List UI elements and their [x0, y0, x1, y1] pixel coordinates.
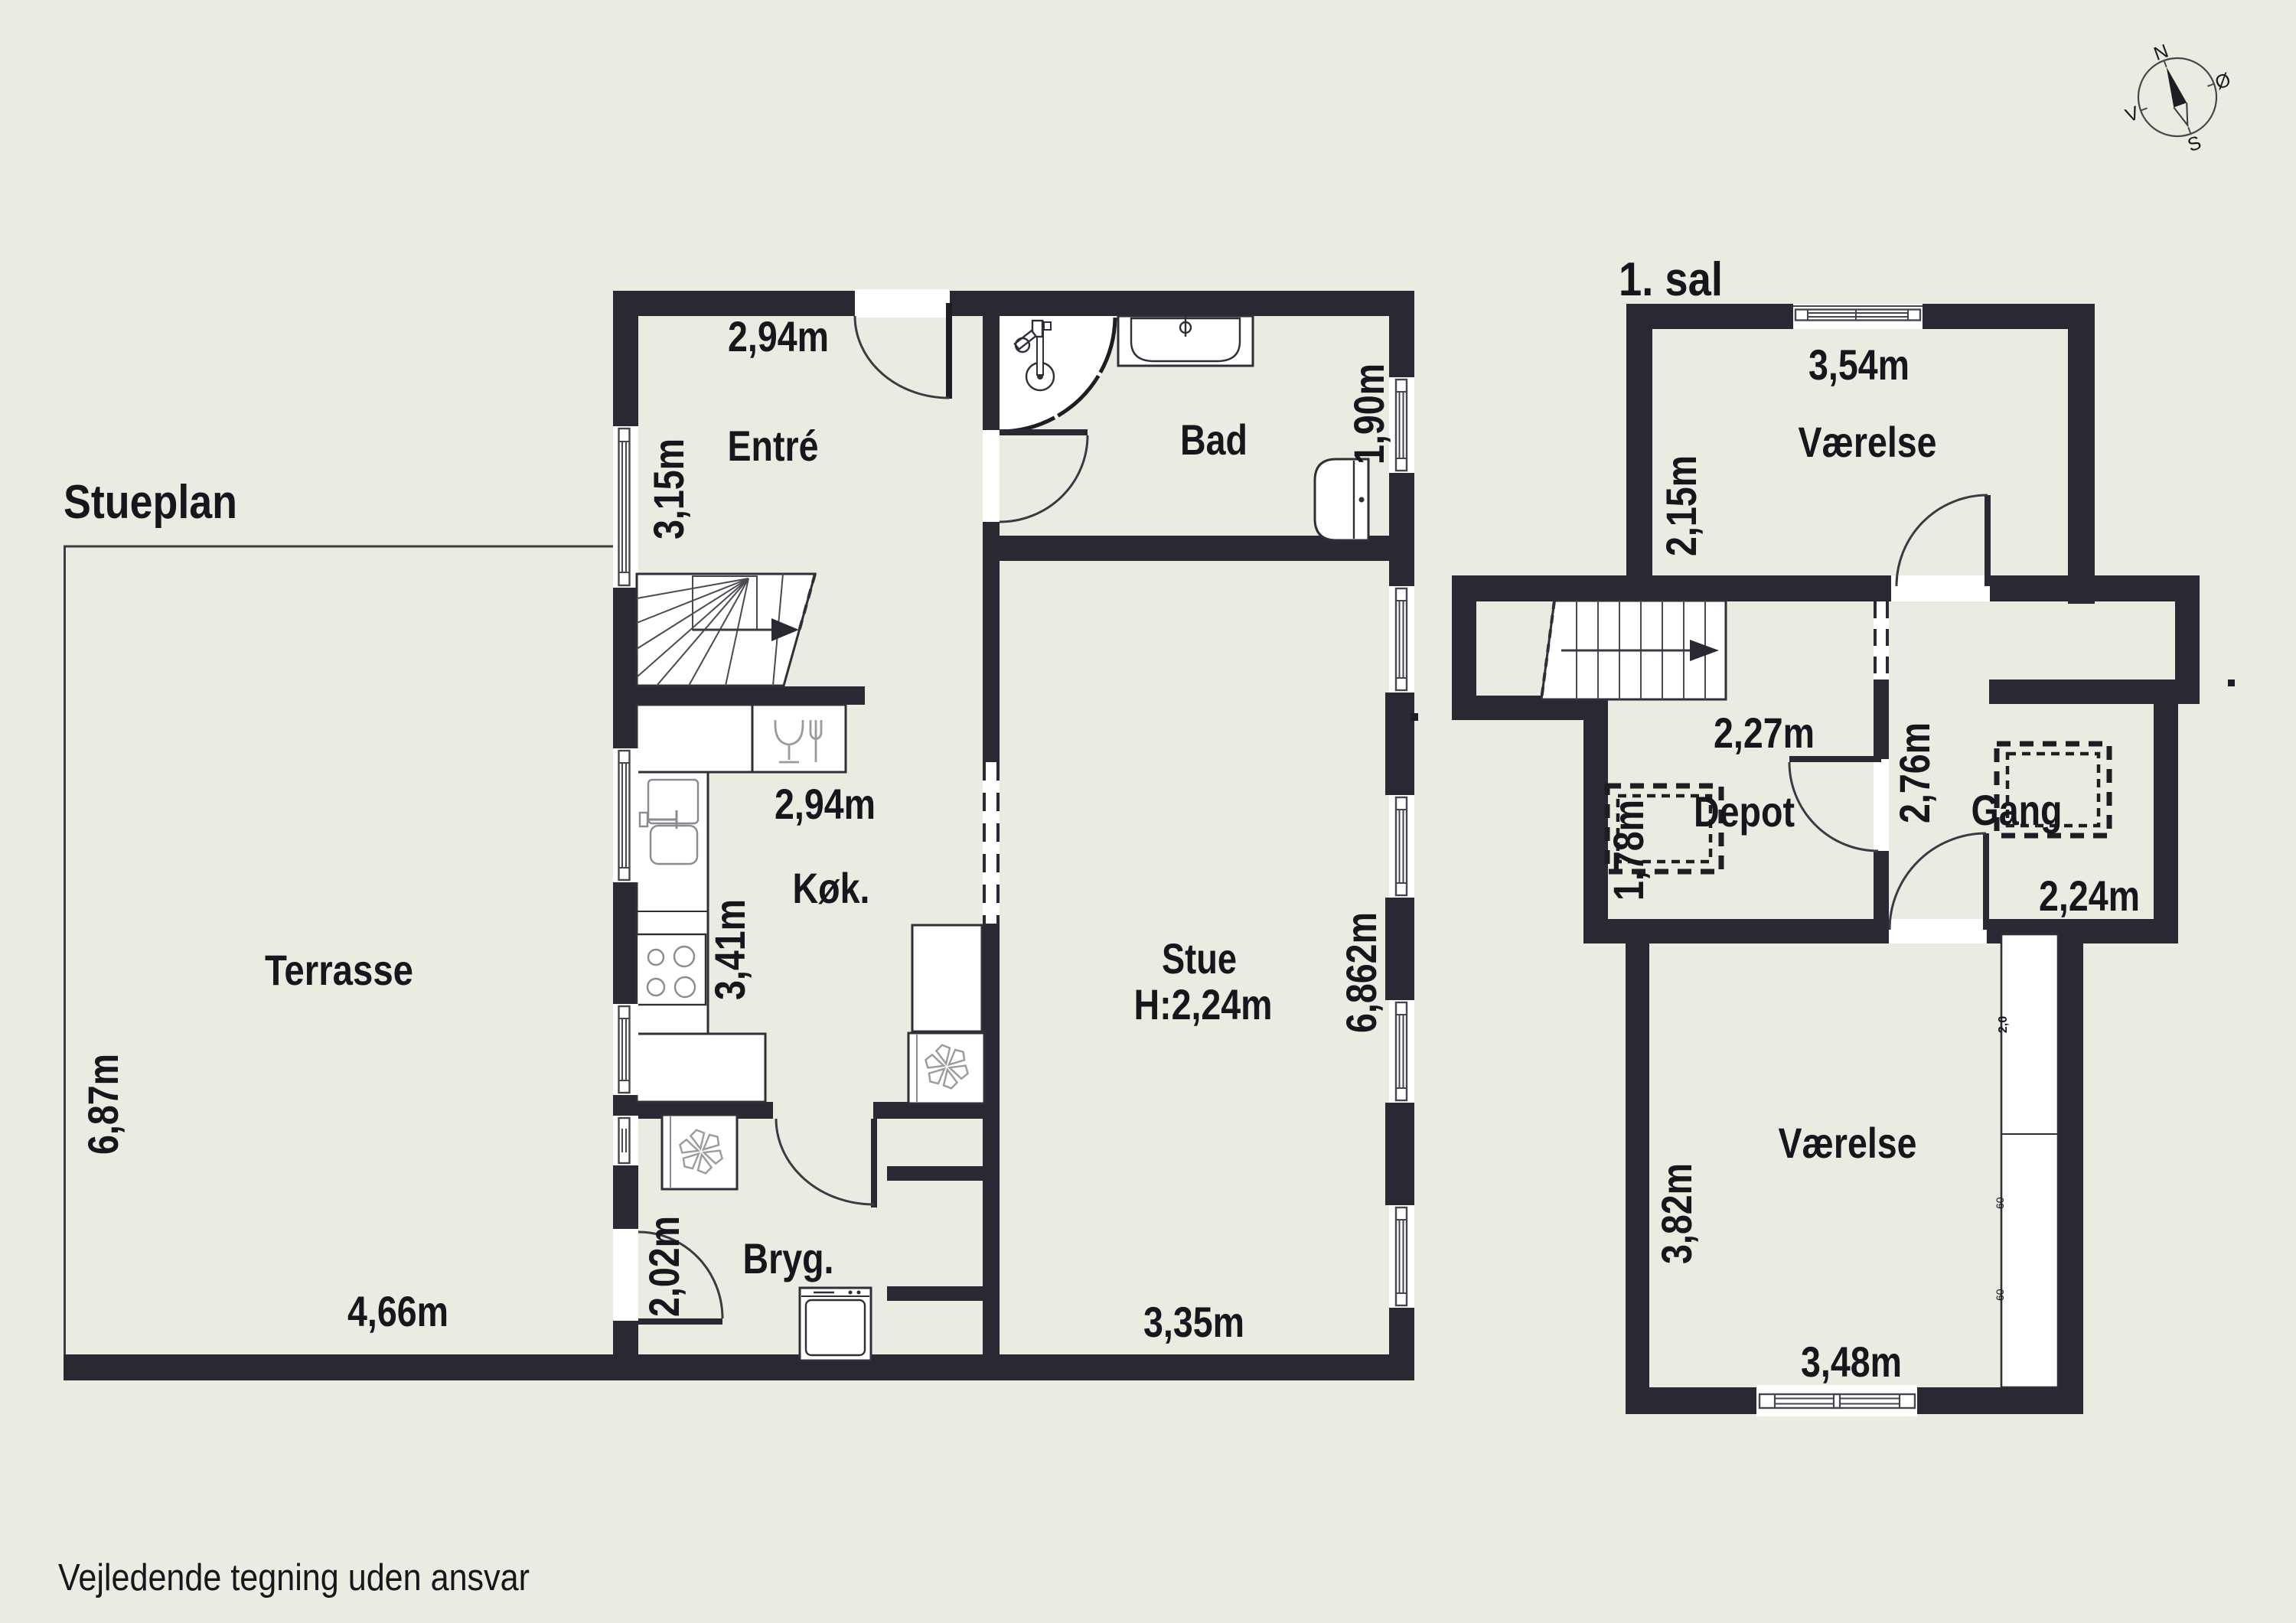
svg-text:Bryg.: Bryg.	[743, 1234, 834, 1282]
svg-text:Terrasse: Terrasse	[265, 946, 413, 994]
svg-text:60: 60	[1994, 1197, 2006, 1209]
svg-text:Værelse: Værelse	[1779, 1119, 1917, 1167]
svg-text:6,862m: 6,862m	[1337, 912, 1385, 1033]
svg-text:2,94m: 2,94m	[775, 780, 876, 828]
svg-text:2,0: 2,0	[1997, 1016, 2010, 1033]
svg-text:4,66m: 4,66m	[347, 1287, 448, 1335]
svg-text:3,54m: 3,54m	[1808, 341, 1910, 389]
svg-text:Bad: Bad	[1180, 416, 1247, 464]
svg-text:Køk.: Køk.	[793, 864, 870, 912]
svg-text:1. sal: 1. sal	[1619, 253, 1723, 306]
svg-text:Vejledende tegning uden ansvar: Vejledende tegning uden ansvar	[58, 1557, 530, 1599]
svg-text:2,94m: 2,94m	[728, 312, 829, 360]
svg-text:3,48m: 3,48m	[1801, 1338, 1902, 1386]
svg-text:2,15m: 2,15m	[1657, 455, 1705, 556]
svg-text:3,15m: 3,15m	[644, 438, 693, 539]
svg-text:3,82m: 3,82m	[1652, 1163, 1701, 1264]
svg-text:Stueplan: Stueplan	[64, 476, 237, 529]
svg-text:60: 60	[1994, 1289, 2006, 1301]
svg-text:6,87m: 6,87m	[79, 1054, 127, 1155]
svg-text:2,02m: 2,02m	[640, 1216, 688, 1317]
svg-text:1,90m: 1,90m	[1345, 363, 1393, 464]
svg-text:H:2,24m: H:2,24m	[1134, 980, 1273, 1028]
svg-text:Entré: Entré	[728, 422, 819, 470]
svg-text:2,24m: 2,24m	[2039, 872, 2140, 920]
svg-text:2,27m: 2,27m	[1714, 709, 1815, 757]
svg-text:Værelse: Værelse	[1799, 418, 1937, 466]
svg-text:Stue: Stue	[1162, 934, 1237, 983]
svg-text:3,35m: 3,35m	[1143, 1298, 1244, 1346]
svg-text:2,76m: 2,76m	[1890, 722, 1939, 823]
svg-text:Gang: Gang	[1971, 786, 2063, 834]
svg-text:Depot: Depot	[1694, 787, 1795, 836]
svg-text:3,41m: 3,41m	[706, 899, 754, 1000]
svg-text:1,78m: 1,78m	[1604, 800, 1652, 901]
